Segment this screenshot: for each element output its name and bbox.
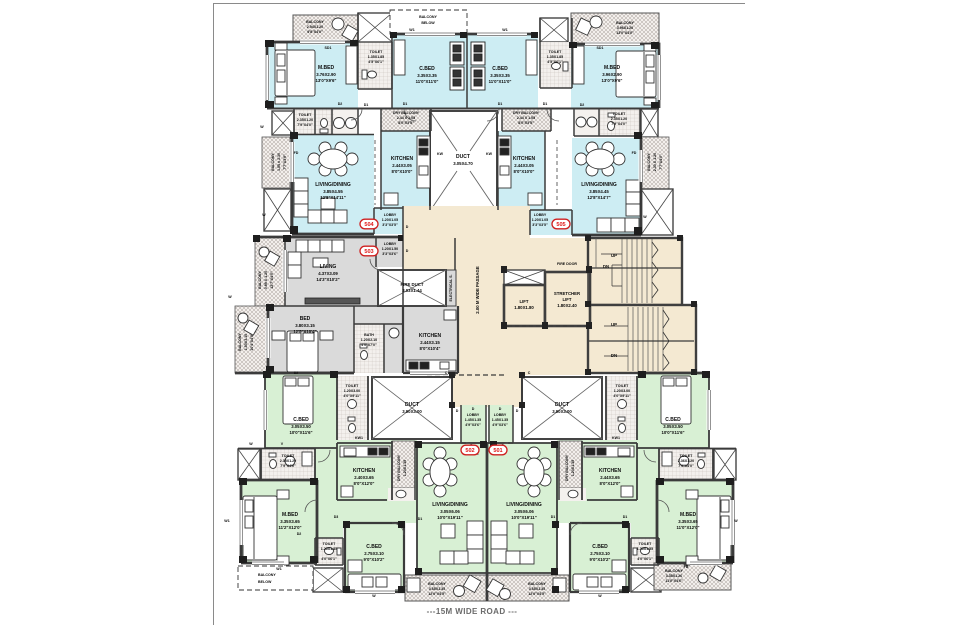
svg-text:W: W	[262, 213, 266, 217]
svg-text:11'0"X11'0": 11'0"X11'0"	[489, 79, 512, 84]
svg-text:D: D	[406, 249, 409, 253]
svg-text:2.35X1.20: 2.35X1.20	[297, 118, 313, 122]
svg-text:7'9"X4'0": 7'9"X4'0"	[280, 464, 296, 468]
svg-text:W: W	[734, 519, 738, 523]
svg-text:W: W	[228, 295, 232, 299]
svg-text:3.35X3.35: 3.35X3.35	[490, 73, 510, 78]
svg-text:3.85X4.45: 3.85X4.45	[589, 189, 609, 194]
svg-text:2.44X3.05: 2.44X3.05	[392, 163, 412, 168]
svg-text:BATH: BATH	[364, 333, 374, 337]
svg-text:D: D	[516, 409, 519, 413]
svg-text:3'3"X3'6": 3'3"X3'6"	[382, 252, 398, 256]
svg-text:2.35X1.20: 2.35X1.20	[611, 117, 627, 121]
svg-text:TOILET: TOILET	[299, 113, 313, 117]
svg-text:1.45X1.35: 1.45X1.35	[465, 418, 481, 422]
svg-text:2.44X3.15: 2.44X3.15	[420, 340, 440, 345]
svg-text:TOILET: TOILET	[346, 384, 360, 388]
svg-text:8'0"X10'4": 8'0"X10'4"	[420, 346, 441, 351]
svg-text:3.90X3.00: 3.90X3.00	[552, 409, 572, 414]
svg-text:3.35X3.35: 3.35X3.35	[417, 73, 437, 78]
svg-text:C.BED: C.BED	[665, 417, 681, 423]
svg-text:M.BED: M.BED	[318, 65, 335, 71]
svg-text:D1: D1	[543, 102, 548, 106]
svg-text:1.30X1.55: 1.30X1.55	[637, 547, 653, 551]
svg-text:10'0"X19'11": 10'0"X19'11"	[511, 515, 536, 520]
svg-text:BALCONY: BALCONY	[271, 153, 275, 171]
svg-text:2.75X3.10: 2.75X3.10	[364, 551, 384, 556]
svg-text:C.BED: C.BED	[293, 417, 309, 423]
svg-text:1.50X3.15: 1.50X3.15	[244, 334, 248, 350]
svg-text:TOILET: TOILET	[680, 454, 694, 458]
svg-text:DRY BALCONY: DRY BALCONY	[397, 454, 401, 481]
svg-text:3.80X3.15: 3.80X3.15	[295, 323, 315, 328]
svg-text:1.20X3.00: 1.20X3.00	[344, 389, 360, 393]
svg-text:M.BED: M.BED	[680, 512, 697, 518]
svg-text:3'3"X3'5": 3'3"X3'5"	[382, 223, 398, 227]
svg-text:M.BED: M.BED	[604, 65, 621, 71]
svg-text:W1: W1	[409, 28, 414, 32]
svg-text:1.20X1.35: 1.20X1.35	[403, 460, 407, 476]
svg-text:D2: D2	[580, 103, 585, 107]
svg-text:FIRE DOOR: FIRE DOOR	[557, 262, 577, 266]
svg-text:D2: D2	[294, 371, 299, 375]
svg-text:BALCONY: BALCONY	[306, 20, 324, 24]
svg-text:BALCONY: BALCONY	[665, 569, 683, 573]
svg-text:D: D	[406, 225, 409, 229]
svg-text:DUCT: DUCT	[405, 402, 419, 408]
svg-text:D: D	[499, 407, 502, 411]
svg-text:503: 503	[364, 249, 373, 255]
svg-text:4'0"X9'11": 4'0"X9'11"	[343, 394, 361, 398]
svg-text:LOBBY: LOBBY	[384, 242, 397, 246]
svg-text:BALCONY: BALCONY	[428, 582, 446, 586]
svg-text:13'0"X9'6": 13'0"X9'6"	[316, 78, 337, 83]
svg-text:1.20X3.00: 1.20X3.00	[614, 389, 630, 393]
svg-text:C: C	[528, 371, 531, 375]
svg-text:4.37X3.09: 4.37X3.09	[318, 271, 338, 276]
svg-text:C.BED: C.BED	[366, 544, 382, 550]
svg-text:KITCHEN: KITCHEN	[513, 156, 536, 162]
svg-text:12'0"X4'5": 12'0"X4'5"	[428, 592, 446, 596]
svg-text:8'0"X3'5": 8'0"X3'5"	[518, 121, 534, 125]
svg-text:KITCHEN: KITCHEN	[419, 333, 442, 339]
svg-text:BELOW: BELOW	[421, 21, 435, 25]
svg-text:STRETCHER: STRETCHER	[554, 291, 581, 296]
svg-text:501: 501	[493, 448, 502, 454]
svg-text:DUCT: DUCT	[555, 402, 569, 408]
svg-text:D2: D2	[338, 102, 343, 106]
svg-text:BALCONY: BALCONY	[616, 21, 634, 25]
svg-text:3.35X3.65: 3.35X3.65	[280, 519, 300, 524]
svg-text:12'8"X14'7": 12'8"X14'7"	[587, 195, 610, 200]
svg-text:3.05X3.50: 3.05X3.50	[291, 424, 311, 429]
svg-text:BALCONY: BALCONY	[258, 573, 276, 577]
svg-text:7'9"X4'0": 7'9"X4'0"	[678, 464, 694, 468]
svg-text:8'0"X3'5": 8'0"X3'5"	[398, 121, 414, 125]
svg-text:3.96X2.90: 3.96X2.90	[602, 72, 622, 77]
svg-text:3.05X4.70: 3.05X4.70	[453, 161, 473, 166]
svg-text:3.90X3.00: 3.90X3.00	[402, 409, 422, 414]
svg-text:2.44X3.65: 2.44X3.65	[600, 475, 620, 480]
svg-text:10'4"X4'5": 10'4"X4'5"	[250, 333, 254, 351]
svg-text:LOBBY: LOBBY	[384, 213, 397, 217]
svg-text:KW1: KW1	[612, 436, 620, 440]
svg-text:BALCONY: BALCONY	[238, 333, 242, 351]
svg-text:C.BED: C.BED	[492, 66, 508, 72]
svg-text:3.03X1.44: 3.03X1.44	[402, 288, 422, 293]
svg-text:1.55 x 3.30: 1.55 x 3.30	[277, 153, 281, 171]
svg-text:C.BED: C.BED	[419, 66, 435, 72]
svg-text:13'0"X4'0": 13'0"X4'0"	[616, 31, 634, 35]
svg-text:TOILET: TOILET	[616, 384, 630, 388]
svg-text:KW1: KW1	[355, 436, 363, 440]
svg-text:12'8"X14'11": 12'8"X14'11"	[320, 195, 345, 200]
svg-text:D1: D1	[418, 517, 423, 521]
svg-text:2.35X1.20: 2.35X1.20	[280, 459, 296, 463]
svg-text:0.89 X 1.20: 0.89 X 1.20	[264, 271, 268, 289]
svg-text:3.05X3.50: 3.05X3.50	[663, 424, 683, 429]
svg-text:ELECTRICAL S.: ELECTRICAL S.	[449, 274, 453, 301]
svg-text:D3: D3	[334, 515, 339, 519]
svg-text:1.45X1.35: 1.45X1.35	[492, 418, 508, 422]
svg-text:BELOW: BELOW	[258, 580, 272, 584]
svg-text:1.35X1.85: 1.35X1.85	[547, 55, 563, 59]
svg-text:M.BED: M.BED	[282, 512, 299, 518]
svg-text:502: 502	[465, 448, 474, 454]
svg-text:LOBBY: LOBBY	[494, 413, 507, 417]
svg-text:3'3"X3'5": 3'3"X3'5"	[532, 223, 548, 227]
svg-text:2.36X1.20: 2.36X1.20	[678, 459, 694, 463]
svg-text:LOBBY: LOBBY	[467, 413, 480, 417]
svg-text:2.44X3.05: 2.44X3.05	[514, 163, 534, 168]
svg-text:505: 505	[556, 222, 565, 228]
svg-text:2.44 X 1.05: 2.44 X 1.05	[517, 116, 535, 120]
svg-text:3.76X2.90: 3.76X2.90	[316, 72, 336, 77]
svg-text:1.20X1.85: 1.20X1.85	[321, 547, 337, 551]
svg-text:2.44 X 1.05: 2.44 X 1.05	[397, 116, 415, 120]
svg-text:TOILET: TOILET	[613, 112, 627, 116]
svg-text:2.75X3.10: 2.75X3.10	[590, 551, 610, 556]
svg-text:DRY BALCONY: DRY BALCONY	[513, 111, 540, 115]
svg-text:2.00 M WIDE PASSAGE: 2.00 M WIDE PASSAGE	[475, 266, 480, 314]
svg-text:D2: D2	[297, 532, 302, 536]
svg-text:D1: D1	[403, 102, 408, 106]
svg-text:LIVING: LIVING	[320, 264, 337, 270]
svg-text:10'0"X19'11": 10'0"X19'11"	[437, 515, 462, 520]
svg-text:D: D	[456, 409, 459, 413]
svg-text:LIFT: LIFT	[519, 299, 528, 304]
svg-text:3.65X1.35: 3.65X1.35	[429, 587, 445, 591]
svg-text:TOILET: TOILET	[323, 542, 337, 546]
svg-text:1.20X1.05: 1.20X1.05	[532, 218, 548, 222]
svg-text:1.20X1.50: 1.20X1.50	[382, 247, 398, 251]
svg-text:12'5"X10'4": 12'5"X10'4"	[293, 329, 316, 334]
svg-text:BALCONY: BALCONY	[258, 271, 262, 289]
svg-text:LIVING/DINING: LIVING/DINING	[581, 182, 617, 188]
svg-text:4'0"X6'1": 4'0"X6'1"	[637, 557, 653, 561]
svg-text:12'0"X4'5": 12'0"X4'5"	[528, 592, 546, 596]
svg-text:13'0"X9'6": 13'0"X9'6"	[602, 78, 623, 83]
svg-text:BALCONY: BALCONY	[647, 153, 651, 171]
svg-text:DN: DN	[603, 264, 609, 269]
svg-text:UP: UP	[611, 253, 617, 258]
svg-text:W: W	[249, 442, 253, 446]
svg-text:W: W	[598, 594, 602, 598]
svg-text:KITCHEN: KITCHEN	[353, 468, 376, 474]
svg-text:2.40X3.65: 2.40X3.65	[354, 475, 374, 480]
svg-text:1.20X1.35: 1.20X1.35	[571, 460, 575, 476]
svg-text:C: C	[445, 371, 448, 375]
svg-text:1.35X1.85: 1.35X1.85	[368, 55, 384, 59]
svg-text:7'7"X4'0": 7'7"X4'0"	[659, 154, 663, 170]
svg-text:SD1: SD1	[325, 46, 332, 50]
svg-text:W1: W1	[502, 28, 507, 32]
svg-text:8'0"X12'0": 8'0"X12'0"	[600, 481, 621, 486]
svg-text:9'0"X10'2": 9'0"X10'2"	[590, 557, 611, 562]
svg-text:FD: FD	[684, 565, 689, 569]
svg-text:9'0"X10'2": 9'0"X10'2"	[364, 557, 385, 562]
svg-text:FIRE DUCT: FIRE DUCT	[401, 282, 424, 287]
svg-text:8'0"X12'0": 8'0"X12'0"	[354, 481, 375, 486]
svg-text:1.80X1.80: 1.80X1.80	[514, 305, 534, 310]
svg-text:14'3"X10'2": 14'3"X10'2"	[316, 277, 339, 282]
svg-text:4'5"X6'1": 4'5"X6'1"	[547, 60, 563, 64]
svg-text:D: D	[472, 407, 475, 411]
svg-text:11'0"X11'0": 11'0"X11'0"	[416, 79, 439, 84]
svg-text:10'0"X11'6": 10'0"X11'6"	[661, 430, 684, 435]
svg-text:BALCONY: BALCONY	[528, 582, 546, 586]
svg-text:3.05X6.06: 3.05X6.06	[440, 509, 460, 514]
svg-text:D1: D1	[498, 102, 503, 106]
svg-text:W: W	[643, 215, 647, 219]
svg-text:W: W	[372, 594, 376, 598]
svg-text:KITCHEN: KITCHEN	[599, 468, 622, 474]
svg-text:TOILET: TOILET	[639, 542, 653, 546]
svg-text:3.85X4.55: 3.85X4.55	[323, 189, 343, 194]
svg-text:FD: FD	[294, 151, 299, 155]
svg-text:11'2"X12'0": 11'2"X12'0"	[278, 525, 301, 530]
svg-text:C.BED: C.BED	[592, 544, 608, 550]
svg-text:504: 504	[364, 222, 374, 228]
svg-text:4'5"X6'1": 4'5"X6'1"	[368, 60, 384, 64]
svg-text:DUCT: DUCT	[456, 154, 470, 160]
svg-text:3.65X1.35: 3.65X1.35	[529, 587, 545, 591]
svg-text:DN: DN	[611, 353, 617, 358]
svg-text:KW: KW	[437, 152, 444, 156]
svg-text:1.80X2.40: 1.80X2.40	[557, 303, 577, 308]
svg-text:D1: D1	[364, 103, 369, 107]
svg-text:7'7"X3'9": 7'7"X3'9"	[283, 154, 287, 170]
svg-text:3.05X6.06: 3.05X6.06	[514, 509, 534, 514]
svg-text:BALCONY: BALCONY	[419, 15, 437, 19]
svg-text:TOILET: TOILET	[549, 50, 563, 54]
svg-text:---15M WIDE ROAD ---: ---15M WIDE ROAD ---	[427, 607, 518, 616]
svg-text:LOBBY: LOBBY	[534, 213, 547, 217]
svg-text:10'0"X11'6": 10'0"X11'6"	[289, 430, 312, 435]
svg-text:1.20X2.10: 1.20X2.10	[361, 338, 377, 342]
svg-text:FD: FD	[632, 151, 637, 155]
svg-text:2.94X1.20: 2.94X1.20	[307, 25, 323, 29]
svg-text:4'0"X9'11": 4'0"X9'11"	[613, 394, 631, 398]
svg-text:DRY BALCONY: DRY BALCONY	[393, 111, 420, 115]
svg-text:D1: D1	[551, 515, 556, 519]
svg-text:4'0"X7'0": 4'0"X7'0"	[361, 343, 377, 347]
svg-text:KITCHEN: KITCHEN	[391, 156, 414, 162]
svg-text:W1: W1	[224, 519, 229, 523]
svg-text:11'0"X12'0": 11'0"X12'0"	[676, 525, 699, 530]
svg-text:BED: BED	[300, 316, 311, 322]
svg-text:1.20X1.05: 1.20X1.05	[382, 218, 398, 222]
svg-text:11'0"X4'6": 11'0"X4'6"	[665, 579, 683, 583]
svg-text:4'0"X6'1": 4'0"X6'1"	[321, 557, 337, 561]
svg-text:LIFT: LIFT	[562, 297, 571, 302]
svg-text:D1: D1	[623, 515, 628, 519]
svg-text:W: W	[260, 125, 264, 129]
svg-text:UP: UP	[611, 322, 617, 327]
svg-text:3.96X1.20: 3.96X1.20	[617, 26, 633, 30]
svg-text:3.35X3.65: 3.35X3.65	[678, 519, 698, 524]
svg-text:DRY BALCONY: DRY BALCONY	[565, 454, 569, 481]
svg-text:LIVING/DINING: LIVING/DINING	[506, 502, 542, 508]
svg-text:8'0"X10'0": 8'0"X10'0"	[392, 169, 413, 174]
svg-text:4'9"X3'6": 4'9"X3'6"	[492, 423, 508, 427]
svg-text:3.35X1.26: 3.35X1.26	[666, 574, 682, 578]
svg-text:8'0"X10'0": 8'0"X10'0"	[514, 169, 535, 174]
svg-text:9'8"X4'0": 9'8"X4'0"	[307, 30, 323, 34]
svg-text:KW: KW	[486, 152, 493, 156]
svg-text:4'9"X3'6": 4'9"X3'6"	[465, 423, 481, 427]
svg-text:W1: W1	[276, 567, 281, 571]
svg-text:7'9"X4'0": 7'9"X4'0"	[611, 122, 627, 126]
svg-text:LIVING/DINING: LIVING/DINING	[315, 182, 351, 188]
svg-text:2.30 X 1.20: 2.30 X 1.20	[653, 153, 657, 171]
svg-text:SD1: SD1	[597, 46, 604, 50]
svg-text:TOILET: TOILET	[370, 50, 384, 54]
svg-text:LIVING/DINING: LIVING/DINING	[432, 502, 468, 508]
svg-text:12'7"X4'0": 12'7"X4'0"	[270, 271, 274, 289]
svg-text:7'9"X4'0": 7'9"X4'0"	[297, 123, 313, 127]
svg-text:TOILET: TOILET	[282, 454, 296, 458]
